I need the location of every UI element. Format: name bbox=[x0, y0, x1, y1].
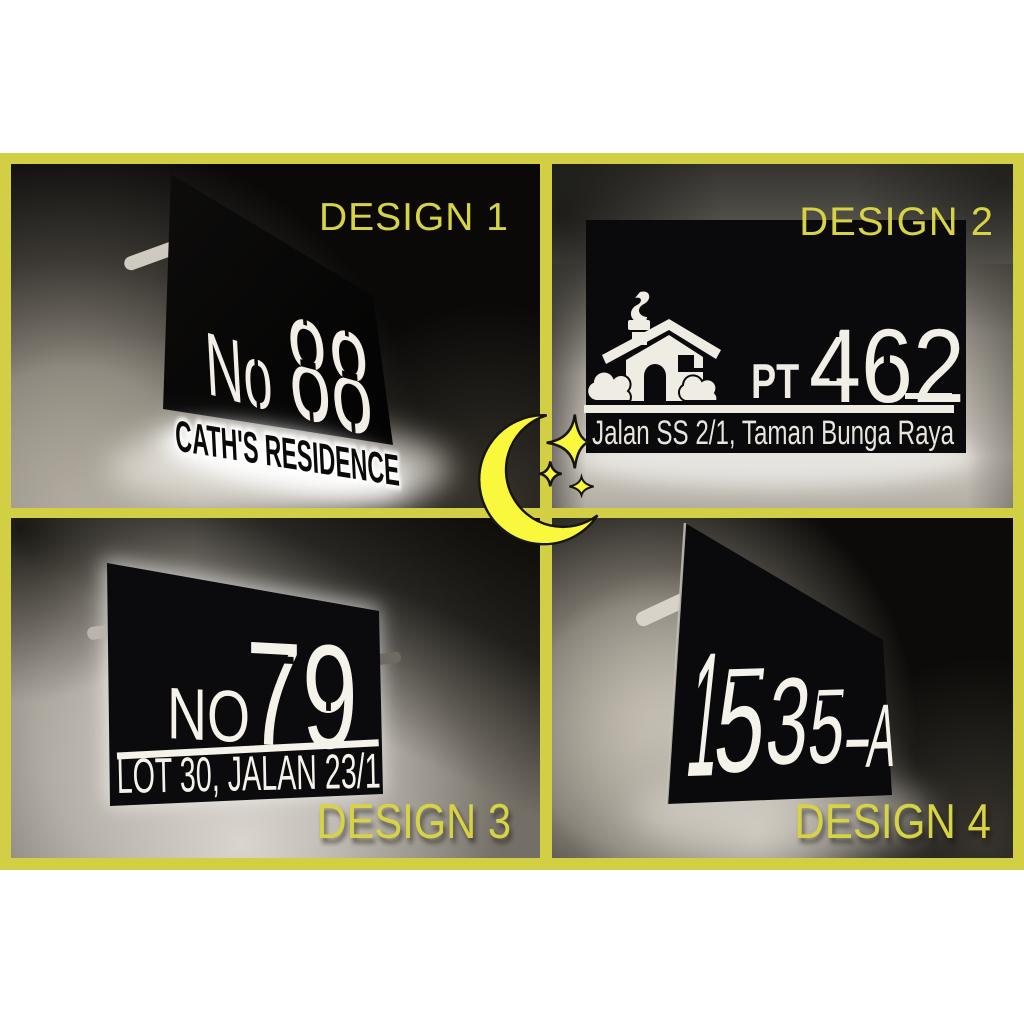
svg-text:Jalan SS 2/1, Taman Bunga Raya: Jalan SS 2/1, Taman Bunga Raya bbox=[592, 414, 954, 452]
svg-text:NO: NO bbox=[167, 673, 250, 758]
svg-text:DESIGN 3: DESIGN 3 bbox=[317, 795, 511, 849]
svg-text:DESIGN 2: DESIGN 2 bbox=[799, 200, 994, 244]
svg-text:DESIGN 1: DESIGN 1 bbox=[319, 196, 509, 239]
svg-text:DESIGN 4: DESIGN 4 bbox=[794, 795, 991, 849]
svg-text:No: No bbox=[203, 314, 275, 432]
svg-text:PT: PT bbox=[751, 355, 799, 409]
